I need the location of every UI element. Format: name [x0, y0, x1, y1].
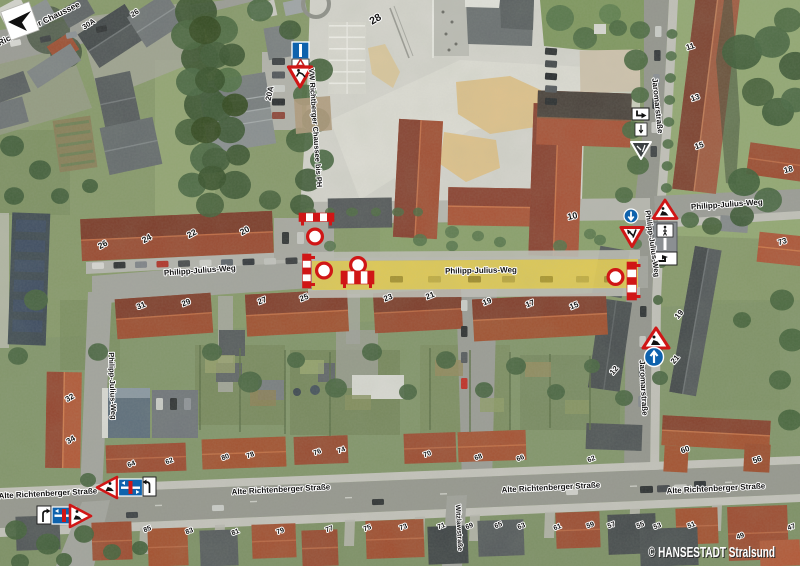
svg-text:Philipp-Julius-Weg: Philipp-Julius-Weg	[445, 265, 517, 275]
svg-text:10: 10	[566, 210, 578, 222]
svg-text:© HANSESTADT Stralsund: © HANSESTADT Stralsund	[648, 544, 775, 561]
